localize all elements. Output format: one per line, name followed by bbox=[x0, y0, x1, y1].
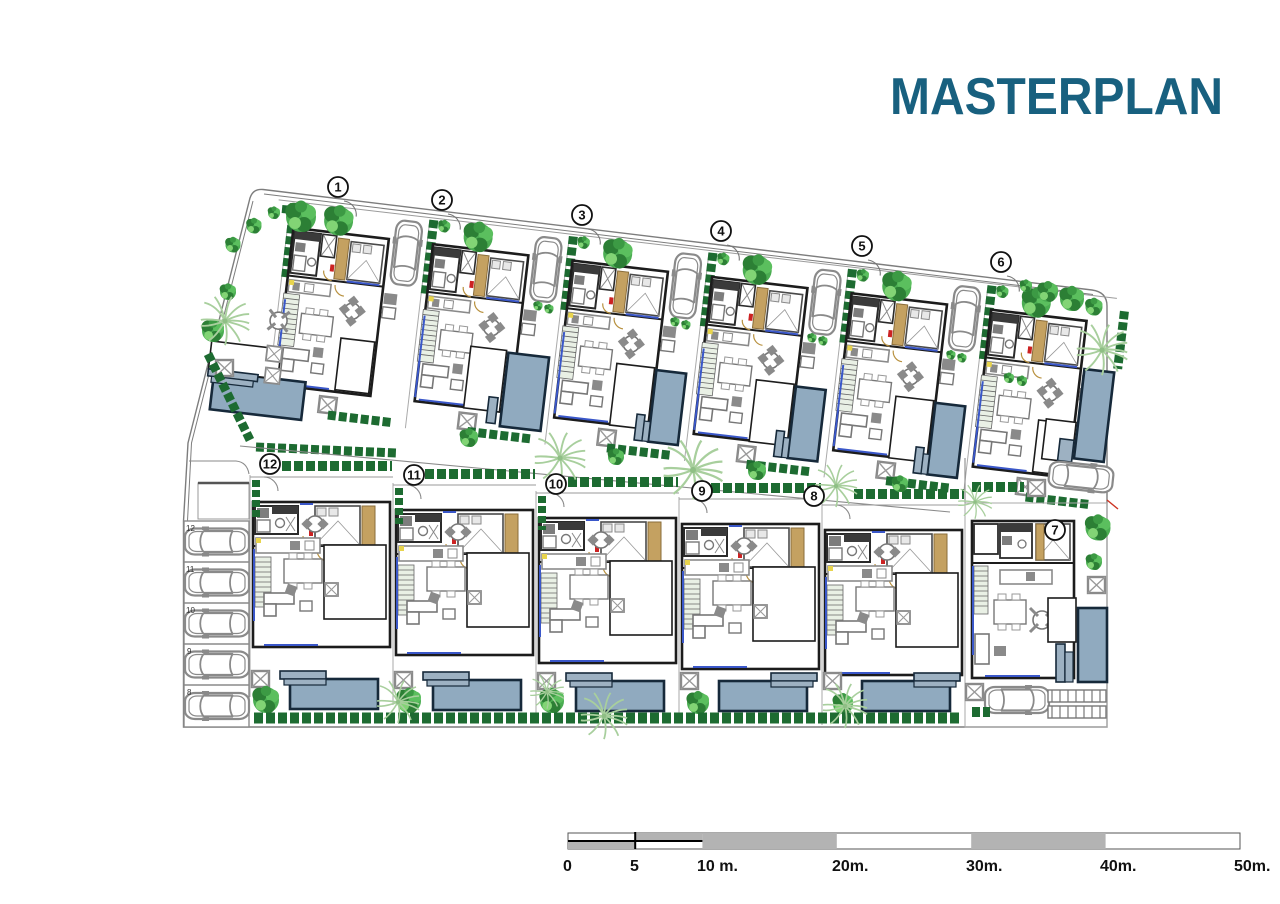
svg-text:MASTERPLAN: MASTERPLAN bbox=[890, 68, 1223, 126]
svg-text:0: 0 bbox=[563, 858, 572, 875]
svg-text:20m.: 20m. bbox=[832, 858, 868, 875]
svg-text:1: 1 bbox=[334, 180, 341, 195]
svg-text:12: 12 bbox=[186, 524, 195, 533]
svg-text:40m.: 40m. bbox=[1100, 858, 1136, 875]
svg-text:9: 9 bbox=[187, 647, 192, 656]
svg-text:9: 9 bbox=[698, 484, 705, 499]
svg-text:5: 5 bbox=[858, 239, 865, 254]
svg-text:11: 11 bbox=[186, 565, 195, 574]
svg-text:3: 3 bbox=[578, 208, 585, 223]
svg-text:8: 8 bbox=[187, 688, 192, 697]
svg-text:10: 10 bbox=[549, 477, 563, 492]
svg-text:50m.: 50m. bbox=[1234, 858, 1270, 875]
svg-text:30m.: 30m. bbox=[966, 858, 1002, 875]
svg-text:10: 10 bbox=[186, 606, 195, 615]
svg-text:10 m.: 10 m. bbox=[697, 858, 738, 875]
svg-text:12: 12 bbox=[263, 457, 277, 472]
svg-text:7: 7 bbox=[1051, 523, 1058, 538]
svg-text:5: 5 bbox=[630, 858, 639, 875]
svg-text:2: 2 bbox=[438, 193, 445, 208]
svg-text:4: 4 bbox=[717, 224, 725, 239]
svg-text:11: 11 bbox=[407, 468, 421, 483]
svg-text:6: 6 bbox=[997, 255, 1004, 270]
svg-text:8: 8 bbox=[810, 489, 817, 504]
